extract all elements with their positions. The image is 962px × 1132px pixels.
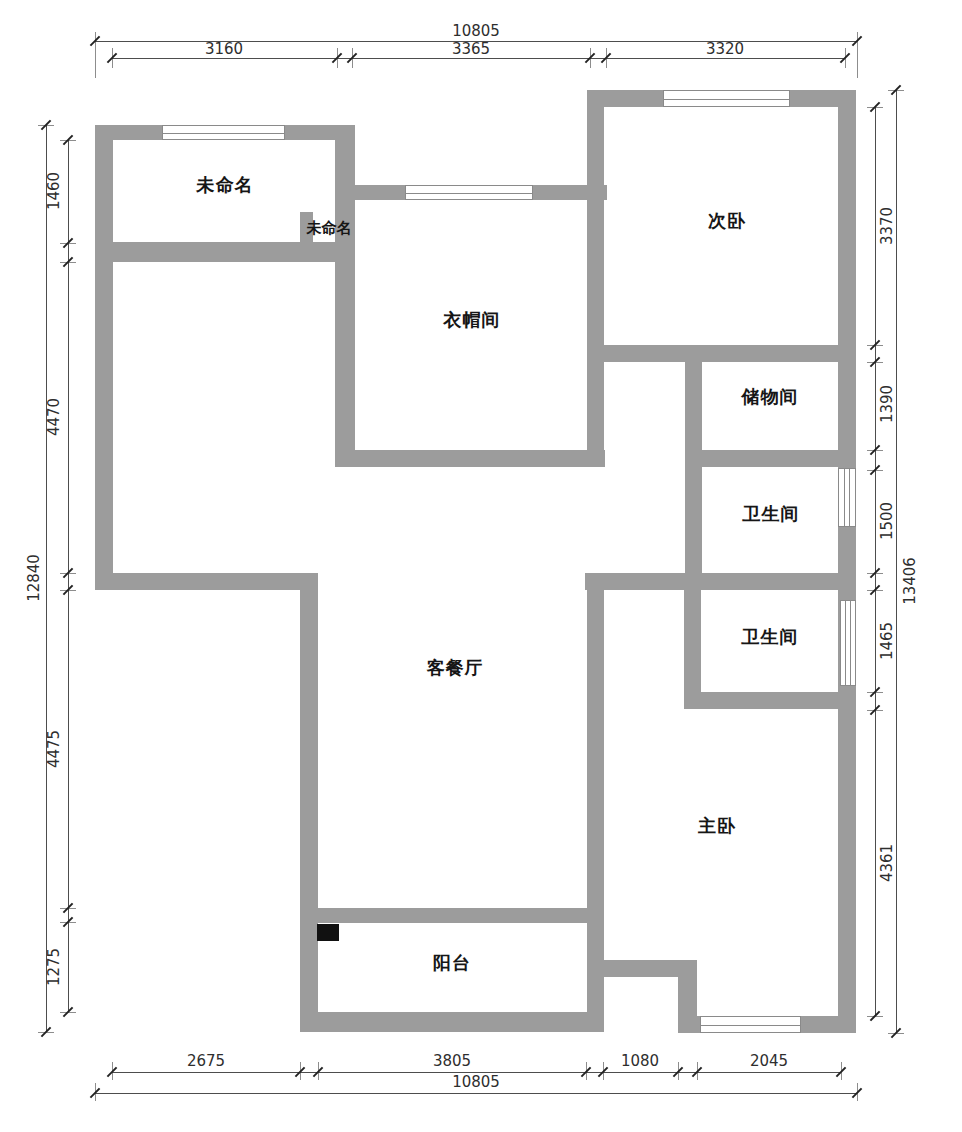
window-bath-lower bbox=[840, 600, 856, 686]
wall-notch-right bbox=[678, 977, 697, 1033]
window-cloakroom-top bbox=[405, 185, 533, 200]
wall-living-master-divider bbox=[587, 573, 604, 1032]
room-label-master-bedroom: 主卧 bbox=[698, 814, 736, 838]
dim-top-total: 10805 bbox=[452, 22, 500, 40]
window-bath-upper bbox=[838, 468, 856, 527]
dim-right-seg-2: 1390 bbox=[878, 385, 896, 423]
dimension-line-right-total bbox=[896, 90, 897, 1033]
dim-bottom-total: 10805 bbox=[452, 1073, 500, 1091]
dim-top-seg-2: 3365 bbox=[452, 40, 490, 58]
wall-storage-bottom bbox=[685, 450, 856, 467]
dim-top-seg-3: 3320 bbox=[706, 40, 744, 58]
room-label-second-bedroom: 次卧 bbox=[708, 209, 746, 233]
wall-notch-top bbox=[603, 960, 697, 977]
wall-second-bedroom-left bbox=[587, 90, 604, 467]
wall-bath-upper-bottom bbox=[585, 573, 856, 590]
room-label-balcony: 阳台 bbox=[433, 951, 471, 975]
room-label-storage: 储物间 bbox=[742, 385, 799, 409]
wall-unnamed-right bbox=[335, 125, 355, 467]
dim-right-seg-3: 1500 bbox=[878, 502, 896, 540]
dim-left-seg-2: 4470 bbox=[45, 398, 63, 436]
wall-cloakroom-bottom bbox=[335, 450, 605, 467]
dimension-line-top-segments bbox=[112, 58, 845, 59]
wall-left-outer bbox=[95, 125, 113, 590]
dim-left-total: 12840 bbox=[25, 554, 43, 602]
room-label-unnamed-top: 未命名 bbox=[197, 173, 254, 197]
room-label-unnamed-small: 未命名 bbox=[307, 219, 352, 238]
dim-bottom-seg-1: 2675 bbox=[187, 1052, 225, 1070]
wall-second-bedroom-bottom bbox=[604, 345, 856, 362]
floor-plan: 未命名 未命名 衣帽间 次卧 储物间 卫生间 卫生间 客餐厅 主卧 阳台 108… bbox=[0, 0, 962, 1132]
window-unnamed-top bbox=[162, 125, 285, 140]
dim-right-total: 13406 bbox=[901, 557, 919, 605]
wall-balcony-bottom bbox=[300, 1012, 603, 1032]
wall-living-left bbox=[300, 573, 318, 1032]
dim-bottom-seg-4: 2045 bbox=[750, 1052, 788, 1070]
room-label-bath-upper: 卫生间 bbox=[743, 502, 800, 526]
wall-left-step bbox=[95, 573, 318, 590]
dimension-line-bottom-total bbox=[95, 1093, 857, 1094]
dim-top-seg-1: 3160 bbox=[205, 40, 243, 58]
dim-left-seg-3: 4475 bbox=[45, 730, 63, 768]
dim-bottom-seg-3: 1080 bbox=[621, 1052, 659, 1070]
dim-left-seg-4: 1275 bbox=[45, 948, 63, 986]
dim-bottom-seg-2: 3805 bbox=[433, 1052, 471, 1070]
window-master-bottom bbox=[700, 1016, 801, 1033]
dim-right-seg-4: 1465 bbox=[878, 622, 896, 660]
wall-right-outer bbox=[838, 90, 856, 1033]
dim-left-seg-1: 1460 bbox=[45, 172, 63, 210]
dim-right-seg-1: 3370 bbox=[878, 207, 896, 245]
flue-column bbox=[317, 924, 339, 941]
window-second-bedroom bbox=[663, 90, 790, 107]
dim-right-seg-5: 4361 bbox=[878, 844, 896, 882]
wall-storage-left bbox=[685, 362, 702, 573]
wall-balcony-top bbox=[300, 908, 603, 923]
room-label-cloakroom: 衣帽间 bbox=[444, 308, 501, 332]
wall-bath-lower-bottom bbox=[684, 692, 856, 709]
dimension-line-right-segments bbox=[875, 107, 876, 1016]
dimension-line-left-total bbox=[46, 125, 47, 1032]
wall-unnamed-bottom bbox=[95, 242, 352, 262]
room-label-bath-lower: 卫生间 bbox=[742, 625, 799, 649]
room-label-living-dining: 客餐厅 bbox=[427, 656, 484, 680]
dimension-line-left-segments bbox=[68, 140, 69, 1012]
